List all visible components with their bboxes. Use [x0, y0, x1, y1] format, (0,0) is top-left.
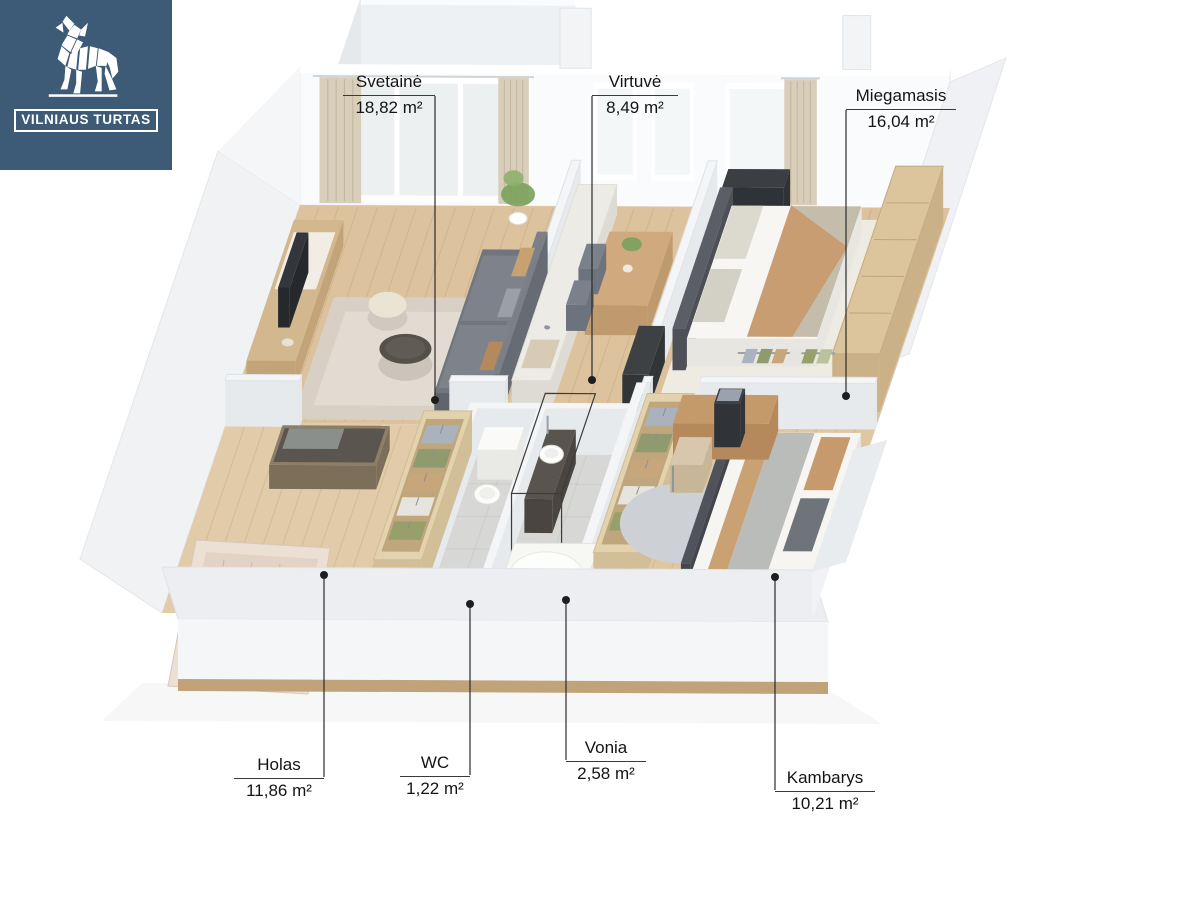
room-area: 1,22 m² [400, 777, 470, 800]
room-area: 8,49 m² [592, 96, 678, 119]
room-name: Kambarys [775, 768, 875, 792]
room-label-holas: Holas 11,86 m² [234, 755, 324, 801]
logo-block: VILNIAUS TURTAS [0, 0, 172, 170]
room-area: 11,86 m² [234, 779, 324, 802]
room-name: Virtuvė [592, 72, 678, 96]
room-name: Holas [234, 755, 324, 779]
room-area: 10,21 m² [775, 792, 875, 815]
wolf-logo-icon [37, 12, 135, 108]
room-label-kambarys: Kambarys 10,21 m² [775, 768, 875, 814]
room-name: Miegamasis [846, 86, 956, 110]
room-area: 18,82 m² [343, 96, 435, 119]
room-name: WC [400, 753, 470, 777]
room-name: Vonia [566, 738, 646, 762]
room-label-virtuve: Virtuvė 8,49 m² [592, 72, 678, 118]
room-label-vonia: Vonia 2,58 m² [566, 738, 646, 784]
logo-company-name: VILNIAUS TURTAS [14, 109, 158, 132]
room-area: 16,04 m² [846, 110, 956, 133]
room-label-svetaine: Svetainė 18,82 m² [343, 72, 435, 118]
floorplan-page: VILNIAUS TURTAS Svetainė 18,82 m² Virtuv… [0, 0, 1200, 900]
room-label-wc: WC 1,22 m² [400, 753, 470, 799]
room-area: 2,58 m² [566, 762, 646, 785]
room-label-miegamasis: Miegamasis 16,04 m² [846, 86, 956, 132]
room-name: Svetainė [343, 72, 435, 96]
